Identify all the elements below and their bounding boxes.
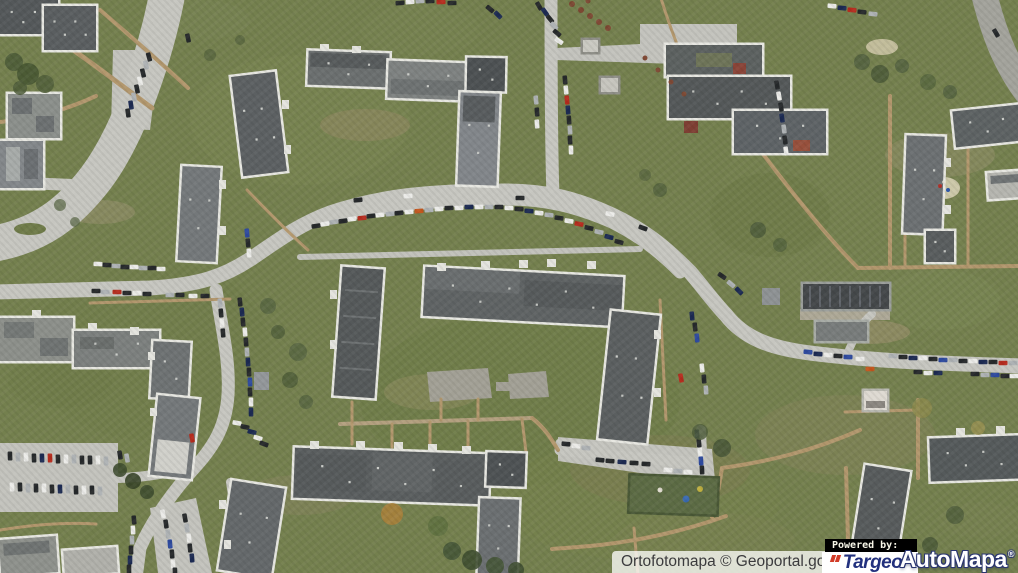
building: [984, 168, 1018, 202]
car: [245, 238, 250, 247]
car: [924, 371, 933, 376]
car: [971, 372, 980, 377]
automapa-registered-mark: ®: [1008, 549, 1014, 559]
car: [516, 196, 525, 201]
car: [454, 206, 463, 211]
car: [98, 486, 103, 495]
entrance-stub: [956, 428, 965, 436]
automapa-wordmark: AutoMapa: [900, 546, 1007, 573]
tree: [381, 503, 403, 525]
car: [514, 206, 523, 211]
tree: [271, 325, 285, 339]
paved-area: [508, 371, 549, 399]
car: [495, 205, 504, 210]
building: [927, 433, 1018, 484]
car: [914, 370, 923, 375]
car: [187, 543, 192, 552]
car: [565, 105, 570, 114]
car: [485, 205, 494, 210]
car: [93, 262, 102, 267]
car: [239, 307, 244, 316]
car: [242, 327, 247, 336]
car: [104, 456, 109, 465]
car: [989, 360, 998, 365]
tree: [443, 542, 461, 560]
car: [120, 265, 129, 270]
tree: [13, 81, 27, 95]
car: [697, 447, 702, 456]
car: [571, 443, 580, 448]
entrance-stub: [394, 442, 403, 450]
car: [641, 461, 650, 466]
car: [96, 455, 101, 464]
car: [813, 351, 822, 356]
ground-feature: [658, 488, 663, 493]
car: [111, 264, 120, 269]
ground-feature: [578, 7, 584, 13]
car: [692, 322, 697, 331]
car: [50, 484, 55, 493]
car: [689, 311, 694, 320]
car: [217, 298, 222, 307]
car: [524, 208, 533, 213]
car: [170, 559, 175, 568]
tree: [260, 298, 276, 314]
entrance-stub: [684, 121, 698, 133]
car: [58, 484, 63, 493]
building: [6, 92, 63, 141]
car: [165, 529, 171, 538]
car: [934, 371, 943, 376]
car: [394, 210, 403, 215]
building: [664, 43, 765, 79]
car: [10, 482, 15, 491]
tree: [299, 395, 313, 409]
car: [698, 456, 703, 465]
building: [599, 76, 621, 95]
paved-area: [496, 382, 510, 391]
car: [564, 95, 569, 104]
car: [474, 205, 483, 210]
car: [981, 373, 990, 378]
footpath: [858, 266, 1018, 268]
targeo-wordmark: Targeo: [843, 552, 903, 573]
car: [899, 355, 908, 360]
car: [629, 460, 638, 465]
car: [113, 290, 122, 295]
car: [833, 354, 842, 359]
entrance-stub: [310, 441, 319, 449]
entrance-stub: [219, 226, 226, 235]
car: [167, 539, 172, 548]
car: [138, 266, 147, 271]
building: [950, 102, 1018, 150]
car: [249, 397, 254, 406]
car: [464, 205, 473, 210]
car: [123, 291, 132, 296]
tree: [895, 59, 909, 73]
car: [240, 317, 245, 326]
tree: [946, 506, 964, 524]
car: [64, 454, 69, 463]
car: [563, 85, 568, 94]
terrain-patch: [866, 39, 898, 55]
ground-feature: [587, 13, 593, 19]
car: [581, 445, 590, 450]
car: [248, 377, 253, 386]
entrance-stub: [356, 441, 365, 449]
entrance-stub: [224, 540, 231, 549]
ground-feature: [946, 188, 950, 192]
car: [189, 294, 198, 299]
terrain-patch: [880, 270, 1000, 330]
car: [189, 553, 194, 562]
car: [80, 455, 85, 464]
entrance-stub: [254, 372, 269, 390]
car: [375, 212, 384, 218]
building: [801, 282, 892, 312]
entrance-stub: [219, 500, 226, 509]
terrain-patch: [320, 109, 410, 141]
car: [856, 357, 865, 362]
ground-feature: [669, 80, 674, 85]
entrance-stub: [32, 310, 41, 318]
car: [1001, 374, 1010, 379]
car: [534, 107, 539, 116]
entrance-stub: [219, 180, 226, 189]
traffic-island: [14, 223, 46, 235]
car: [201, 294, 210, 299]
building: [0, 533, 61, 573]
ground-feature: [643, 56, 648, 61]
entrance-stub: [654, 388, 661, 397]
tree: [289, 343, 307, 361]
tree: [713, 439, 731, 457]
ground-feature: [605, 25, 611, 31]
entrance-stub: [587, 261, 596, 269]
building: [0, 139, 46, 191]
ground-feature: [656, 68, 661, 73]
car: [219, 318, 224, 327]
car: [173, 567, 178, 573]
car: [969, 359, 978, 364]
entrance-stub: [462, 446, 471, 454]
entrance-stub: [330, 340, 337, 349]
automapa-logo[interactable]: AutoMapa ®: [900, 544, 1014, 573]
building: [291, 445, 493, 507]
car: [148, 266, 157, 271]
traffic-islands: [14, 223, 46, 235]
car: [909, 356, 918, 361]
building: [627, 473, 720, 517]
car: [694, 333, 699, 342]
car: [567, 135, 572, 144]
building: [924, 229, 957, 265]
car: [92, 289, 101, 294]
car: [425, 0, 434, 4]
ground-feature: [942, 180, 946, 184]
car: [534, 119, 539, 128]
car: [991, 373, 1000, 378]
map-viewport[interactable]: Ortofotomapa © Geoportal.gov.pl Powered …: [0, 0, 1018, 573]
entrance-stub: [547, 259, 556, 267]
entrance-stub: [481, 261, 490, 269]
tree: [639, 169, 651, 181]
terrain-patch: [360, 5, 480, 55]
car: [237, 297, 242, 306]
car: [42, 483, 47, 492]
car: [246, 248, 251, 257]
car: [827, 3, 836, 8]
car: [837, 5, 846, 10]
tree: [854, 54, 870, 70]
car: [617, 459, 626, 464]
car: [414, 208, 423, 213]
car: [857, 9, 866, 15]
building: [148, 338, 193, 401]
car: [101, 290, 110, 295]
entrance-stub: [320, 44, 329, 51]
entrance-stub: [148, 352, 155, 360]
tree: [36, 75, 54, 93]
car: [663, 467, 672, 472]
tree: [871, 65, 889, 83]
car: [131, 515, 136, 524]
entrance-stub: [654, 330, 661, 339]
car: [444, 206, 453, 211]
car: [434, 206, 443, 211]
car: [703, 385, 708, 394]
car: [533, 95, 538, 104]
car: [868, 11, 877, 17]
tree: [943, 85, 957, 99]
car: [673, 469, 682, 474]
car: [16, 452, 21, 461]
tree: [462, 550, 482, 570]
tree: [653, 183, 667, 197]
entrance-stub: [437, 263, 446, 271]
car: [919, 356, 928, 361]
car: [404, 209, 413, 214]
car: [169, 549, 174, 558]
car: [567, 125, 572, 134]
car: [102, 263, 111, 268]
car: [218, 308, 223, 317]
tree: [235, 35, 245, 45]
car: [1009, 361, 1018, 366]
car: [569, 145, 574, 154]
car: [979, 360, 988, 365]
ground-feature: [683, 496, 690, 503]
entrance-stub: [944, 205, 951, 214]
car: [353, 197, 362, 202]
car: [403, 193, 412, 198]
car: [595, 457, 604, 462]
car: [128, 556, 133, 565]
car: [385, 211, 394, 216]
tree: [773, 238, 787, 252]
tree: [912, 398, 932, 418]
car: [999, 361, 1008, 366]
car: [366, 213, 375, 219]
car: [244, 347, 249, 356]
car: [847, 7, 856, 12]
ground-feature: [938, 184, 942, 188]
building: [814, 320, 870, 344]
car: [889, 354, 898, 359]
car: [245, 357, 250, 366]
car: [34, 483, 39, 492]
car: [424, 207, 433, 212]
car: [90, 485, 95, 494]
car: [247, 367, 252, 376]
building: [61, 545, 121, 573]
building: [581, 38, 601, 55]
ground-feature: [682, 92, 687, 97]
building: [175, 163, 223, 264]
building: [484, 450, 528, 489]
entrance-stub: [996, 426, 1005, 434]
car: [130, 525, 135, 534]
entrance-stub: [352, 46, 361, 53]
car: [127, 565, 132, 573]
car: [24, 452, 29, 461]
car: [447, 1, 456, 6]
car: [157, 267, 166, 272]
car: [395, 0, 404, 5]
car: [803, 349, 812, 354]
car: [405, 0, 414, 5]
car: [48, 453, 53, 462]
car: [561, 441, 570, 446]
car: [72, 454, 77, 463]
entrance-stub: [944, 158, 951, 167]
car: [415, 0, 424, 4]
car: [143, 292, 152, 297]
car: [562, 75, 567, 84]
car: [66, 484, 71, 493]
car: [26, 483, 31, 492]
entrance-stub: [793, 140, 810, 151]
tree: [204, 49, 216, 61]
car: [248, 387, 253, 396]
copyright-label: Ortofotomapa © Geoportal.gov.pl: [612, 551, 857, 573]
entrance-stub: [733, 63, 746, 74]
building: [72, 329, 162, 370]
tree: [971, 421, 985, 435]
car: [32, 453, 37, 462]
car: [949, 358, 958, 363]
tree: [125, 473, 141, 489]
car: [243, 337, 248, 346]
car: [220, 328, 225, 337]
building: [331, 264, 386, 401]
ground-feature: [697, 486, 703, 492]
entrance-stub: [330, 290, 337, 299]
entrance-stub: [88, 323, 97, 331]
tree: [428, 516, 448, 536]
building: [464, 55, 508, 94]
car: [74, 485, 79, 494]
tree: [54, 199, 66, 211]
tree: [692, 424, 708, 440]
car: [18, 482, 23, 491]
building: [455, 90, 502, 188]
aerial-orthophoto[interactable]: [0, 0, 1018, 573]
car: [699, 465, 704, 474]
car: [40, 453, 45, 462]
car: [8, 451, 13, 460]
car: [436, 0, 445, 4]
tree: [282, 372, 298, 388]
road: [551, 0, 553, 196]
building: [42, 4, 99, 53]
entrance-stub: [130, 327, 139, 335]
ground-feature: [596, 19, 602, 25]
car: [357, 215, 366, 221]
car: [683, 470, 692, 475]
building: [0, 316, 76, 364]
tree: [70, 217, 80, 227]
car: [929, 357, 938, 362]
tree: [140, 485, 154, 499]
car: [504, 206, 513, 211]
car: [823, 353, 832, 358]
entrance-stub: [284, 145, 291, 154]
car: [133, 291, 142, 296]
car: [166, 293, 175, 298]
building: [862, 389, 890, 413]
entrance-stub: [519, 260, 528, 268]
car: [939, 358, 948, 363]
car: [605, 458, 614, 463]
car: [701, 374, 706, 383]
car: [88, 455, 93, 464]
car: [56, 454, 61, 463]
car: [566, 115, 571, 124]
tree: [750, 222, 766, 238]
building: [420, 264, 626, 329]
car: [1010, 374, 1018, 379]
car: [244, 228, 249, 237]
car: [866, 367, 875, 372]
ground-feature: [569, 1, 575, 7]
car: [544, 212, 553, 218]
car: [129, 545, 134, 554]
car: [959, 359, 968, 364]
car: [176, 293, 185, 298]
entrance-stub: [282, 100, 289, 109]
car: [82, 485, 87, 494]
car: [249, 407, 254, 416]
paved-area: [427, 368, 492, 402]
entrance-stub: [762, 288, 780, 305]
entrance-stub: [150, 408, 157, 416]
tree: [113, 463, 127, 477]
car: [843, 355, 852, 360]
tree: [920, 74, 936, 90]
car: [130, 535, 135, 544]
entrance-stub: [428, 444, 437, 452]
car: [186, 533, 192, 542]
car: [129, 265, 138, 270]
building: [305, 48, 392, 90]
car: [534, 210, 543, 215]
targeo-quote-icon: [831, 555, 841, 562]
car: [699, 363, 704, 372]
